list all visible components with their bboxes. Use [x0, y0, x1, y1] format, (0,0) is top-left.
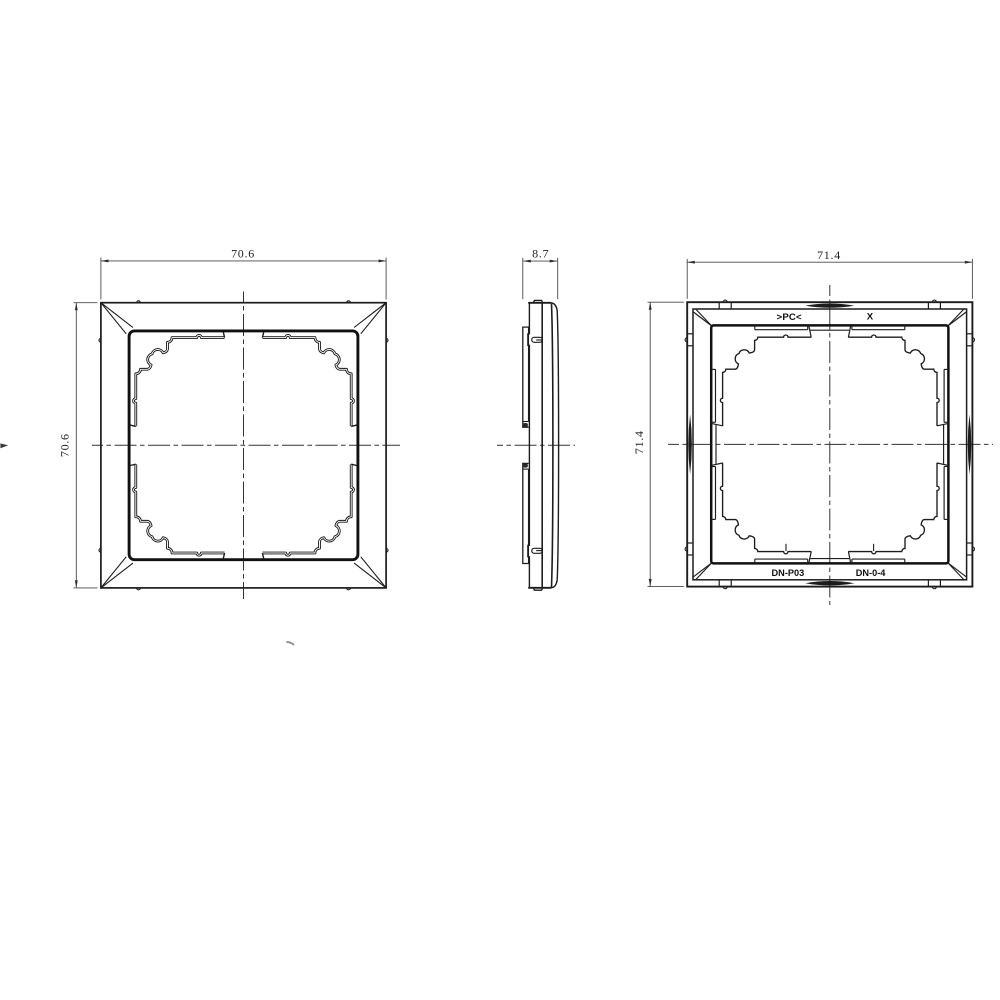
svg-text:>PC<: >PC< — [777, 312, 803, 323]
svg-text:X: X — [867, 312, 874, 323]
svg-text:DN-P03: DN-P03 — [772, 568, 805, 578]
svg-text:70.6: 70.6 — [231, 246, 255, 260]
svg-text:70.6: 70.6 — [58, 433, 72, 457]
svg-text:71.4: 71.4 — [817, 248, 841, 262]
svg-text:DN-0-4: DN-0-4 — [856, 568, 886, 578]
svg-text:71.4: 71.4 — [632, 430, 646, 454]
svg-text:8.7: 8.7 — [532, 247, 549, 261]
